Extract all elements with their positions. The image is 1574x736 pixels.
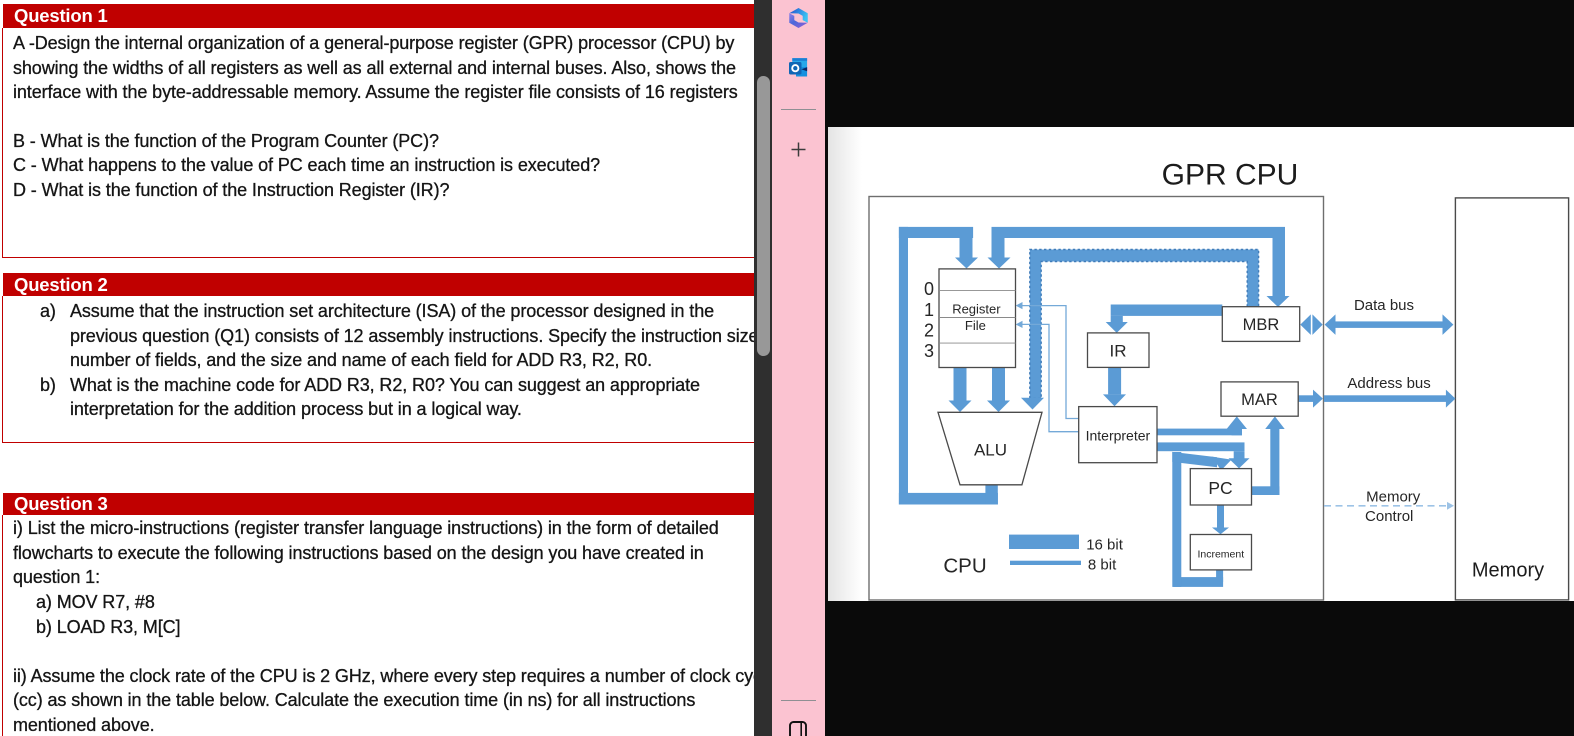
svg-text:PC: PC <box>1208 478 1232 498</box>
svg-text:Address bus: Address bus <box>1347 375 1430 392</box>
svg-text:GPR CPU: GPR CPU <box>1162 159 1299 192</box>
svg-text:1: 1 <box>924 300 934 320</box>
svg-text:IR: IR <box>1110 342 1127 361</box>
svg-text:Control: Control <box>1365 508 1413 525</box>
svg-text:3: 3 <box>924 341 934 361</box>
svg-text:Memory: Memory <box>1366 489 1421 506</box>
svg-text:8 bit: 8 bit <box>1088 557 1117 574</box>
svg-text:MAR: MAR <box>1241 391 1278 409</box>
svg-text:Memory: Memory <box>1472 560 1544 582</box>
svg-text:Data bus: Data bus <box>1354 297 1414 314</box>
svg-text:MBR: MBR <box>1243 316 1280 334</box>
svg-text:16 bit: 16 bit <box>1086 537 1124 554</box>
svg-text:Register: Register <box>952 302 1001 317</box>
svg-text:Interpreter: Interpreter <box>1086 428 1151 444</box>
svg-text:File: File <box>965 318 986 333</box>
svg-text:CPU: CPU <box>943 555 986 578</box>
svg-text:ALU: ALU <box>974 441 1007 460</box>
svg-text:2: 2 <box>924 320 934 340</box>
svg-text:Increment: Increment <box>1197 549 1244 561</box>
svg-text:0: 0 <box>924 279 934 299</box>
